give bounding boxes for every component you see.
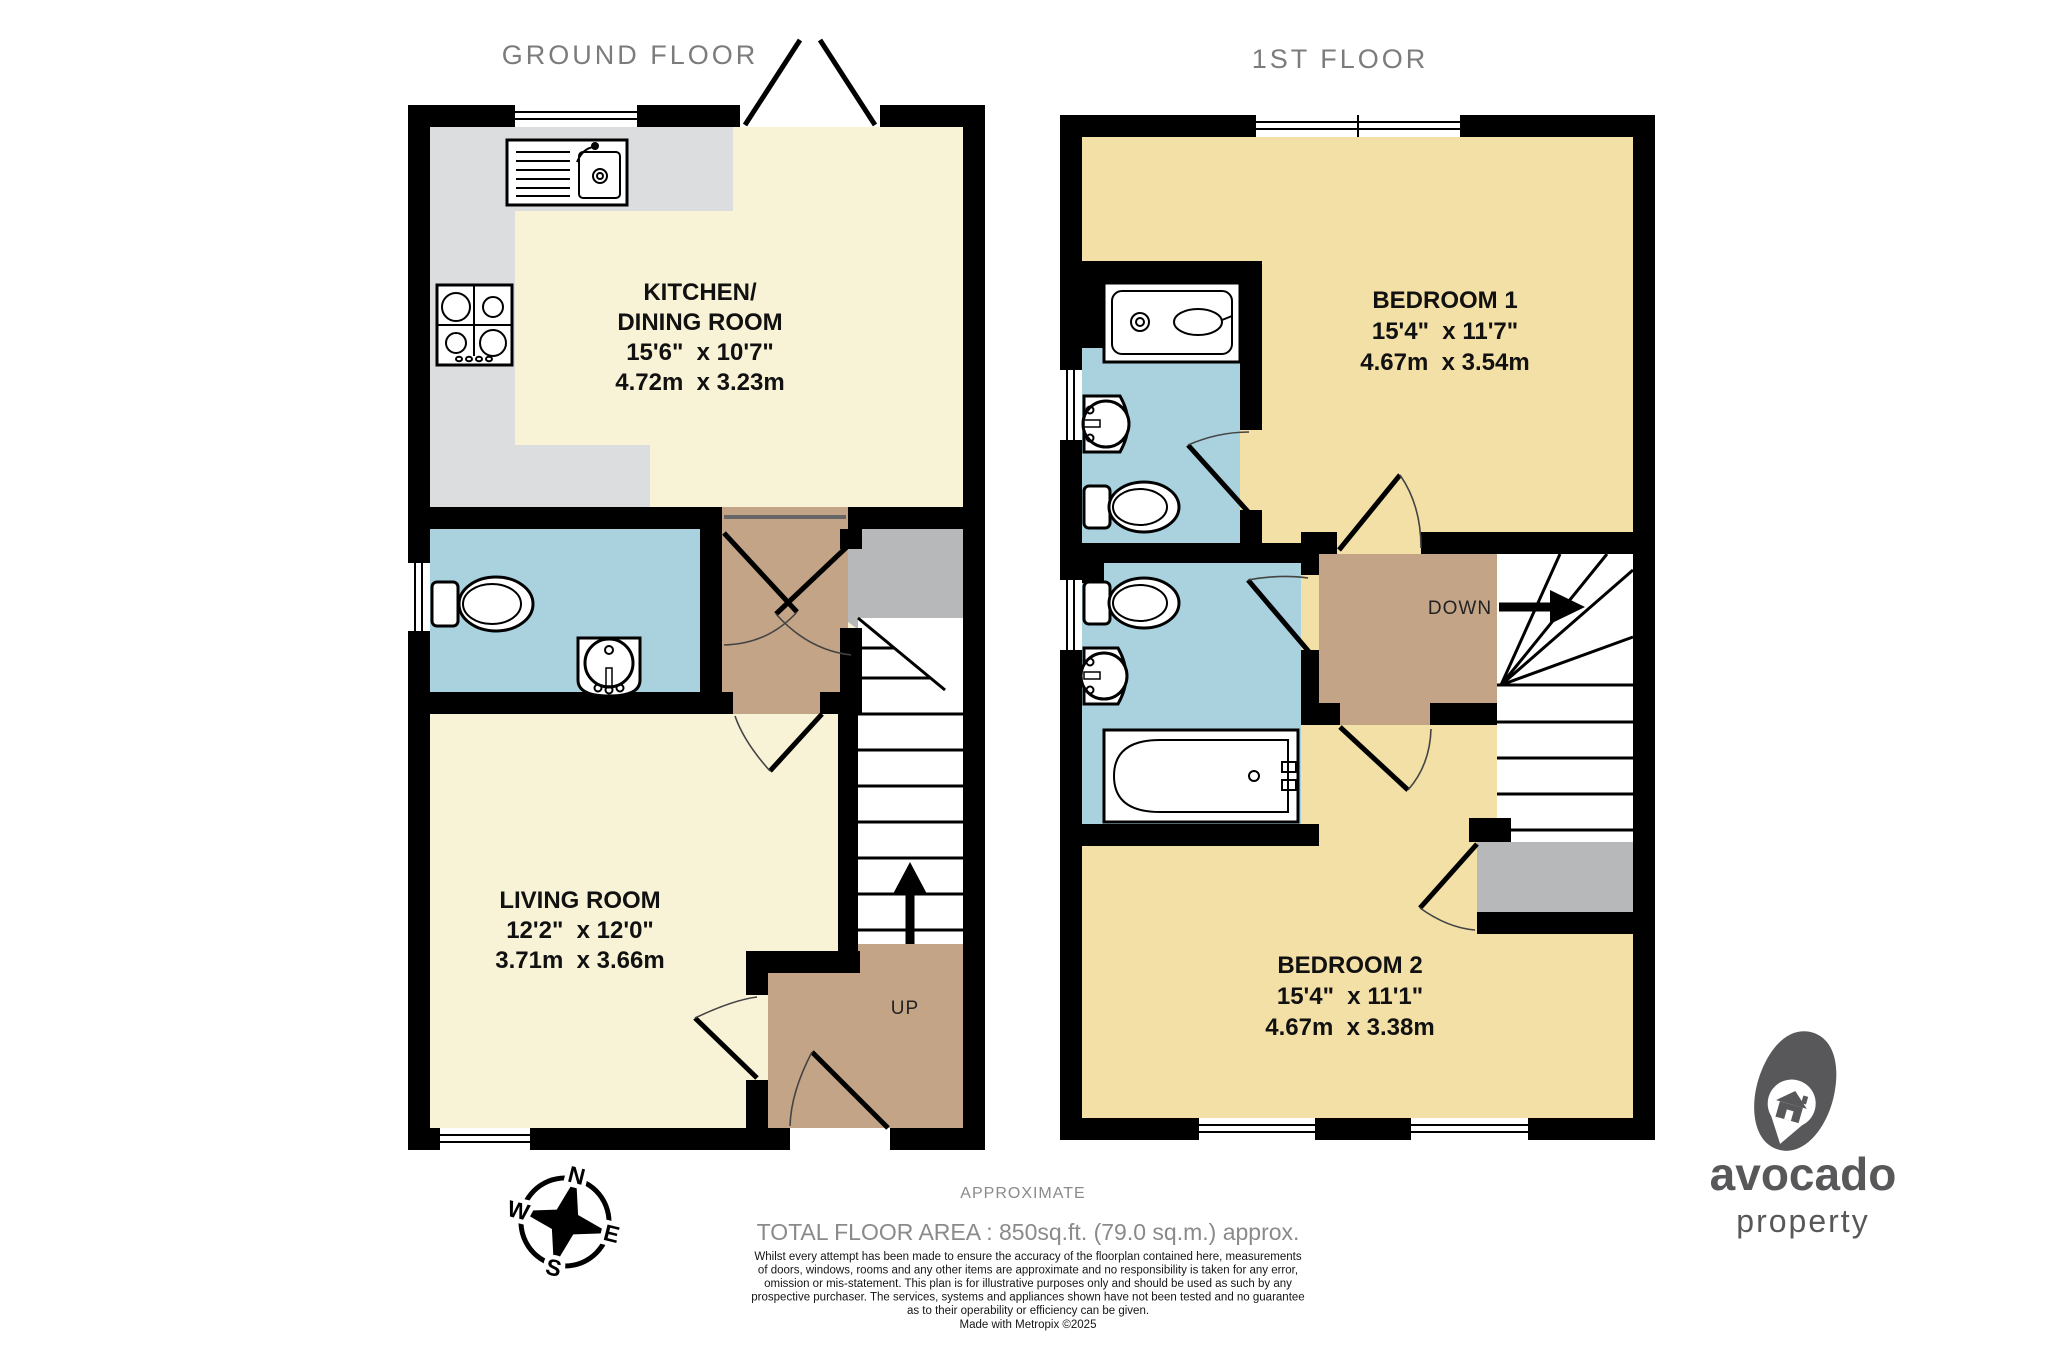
made-with-label: Made with Metropix ©2025: [960, 1319, 1097, 1331]
svg-text:DINING ROOM: DINING ROOM: [617, 309, 782, 336]
logo-wordmark: avocado: [1710, 1148, 1897, 1200]
first-cupboard: [1477, 842, 1633, 912]
svg-text:4.67m x 3.54m: 4.67m x 3.54m: [1360, 349, 1529, 376]
living-stairs-wall: [838, 714, 858, 957]
kitchen-label: KITCHEN/: [643, 279, 757, 306]
compass-e: E: [601, 1219, 622, 1248]
living-window: [440, 1128, 530, 1150]
wc-right-wall: [700, 529, 722, 692]
disclaimer-line: of doors, windows, rooms and any other i…: [758, 1265, 1298, 1277]
living-label: LIVING ROOM: [499, 887, 660, 914]
ensuite-right-wall: [1240, 261, 1262, 430]
first-stair-well: [1497, 554, 1633, 842]
up-label: UP: [891, 998, 919, 1019]
down-label: DOWN: [1428, 598, 1492, 619]
kitchen-window: [515, 105, 637, 127]
bathroom-window: [1060, 580, 1082, 650]
brand-logo: avocado property: [1710, 1022, 1897, 1239]
ground-floor-title: GROUND FLOOR: [502, 40, 759, 70]
landing-bottom-wall-right: [1430, 703, 1497, 725]
landing: [1319, 554, 1497, 725]
ensuite-sink: [1083, 396, 1129, 452]
bathroom-toilet: [1084, 578, 1179, 628]
hall-stairs-stub-bottom: [840, 628, 862, 714]
disclaimer-line: Whilst every attempt has been made to en…: [754, 1251, 1301, 1263]
cupboard-wall-stub: [1469, 818, 1511, 842]
compass-n: N: [565, 1161, 587, 1190]
living-hall-wall-v1: [746, 951, 768, 995]
wc-window: [408, 563, 430, 631]
svg-text:4.67m x 3.38m: 4.67m x 3.38m: [1265, 1014, 1434, 1041]
bathroom-corner-block: [1082, 563, 1104, 583]
bath: [1104, 730, 1298, 822]
wc-toilet: [432, 577, 533, 631]
footer-block: APPROXIMATE TOTAL FLOOR AREA : 850sq.ft.…: [751, 1185, 1304, 1331]
compass-w: W: [505, 1195, 533, 1226]
svg-text:15'4" x 11'1": 15'4" x 11'1": [1277, 983, 1423, 1010]
kitchen-cupboard-wall: [848, 507, 963, 529]
svg-text:15'6" x 10'7": 15'6" x 10'7": [626, 339, 774, 366]
sink-tap: [591, 142, 599, 150]
wc-sink: [578, 638, 640, 696]
ensuite-bathroom-wall: [1082, 543, 1319, 563]
kitchen-counter-left-block: [430, 445, 650, 507]
ground-staircase: [858, 618, 963, 968]
floorplan-svg: GROUND FLOOR: [0, 0, 2048, 1365]
avocado-icon: [1741, 1022, 1849, 1161]
approximate-label: APPROXIMATE: [960, 1185, 1085, 1202]
kitchen-sink: [507, 140, 627, 205]
disclaimer-line: as to their operability or efficiency ca…: [907, 1305, 1149, 1317]
bathroom-sink: [1081, 648, 1127, 704]
bedroom1-label: BEDROOM 1: [1372, 287, 1517, 314]
bed1-ensuite-wall: [1082, 261, 1262, 283]
svg-text:3.71m x 3.66m: 3.71m x 3.66m: [495, 947, 664, 974]
disclaimer-line: prospective purchaser. The services, sys…: [751, 1292, 1304, 1304]
floorplan-page: GROUND FLOOR: [0, 0, 2048, 1365]
bedroom1-window: [1256, 115, 1460, 137]
svg-text:4.72m x 3.23m: 4.72m x 3.23m: [615, 369, 784, 396]
kitchen-hob: [437, 285, 512, 365]
compass-s: S: [543, 1253, 564, 1282]
bedroom2-label: BEDROOM 2: [1277, 952, 1422, 979]
first-staircase: [1497, 554, 1633, 842]
svg-text:15'4" x 11'7": 15'4" x 11'7": [1372, 318, 1518, 345]
ensuite-toilet: [1084, 482, 1179, 532]
wc-living-wall: [430, 692, 733, 714]
bedroom2-window-left: [1199, 1118, 1315, 1140]
entrance-hall-upper: [858, 944, 963, 973]
ground-floor-plan: GROUND FLOOR: [408, 40, 985, 1150]
shower: [1104, 283, 1240, 362]
first-floor-plan: 1ST FLOOR DOWN: [1060, 44, 1655, 1140]
landing-top-wall-right: [1421, 532, 1633, 554]
disclaimer-line: omission or mis-statement. This plan is …: [764, 1278, 1292, 1290]
landing-top-wall-left: [1301, 532, 1337, 554]
logo-subtext: property: [1736, 1203, 1869, 1239]
kitchen-wc-wall: [430, 507, 722, 529]
cupboard-bottom-wall: [1477, 912, 1633, 934]
bedroom2-window-right: [1411, 1118, 1528, 1140]
bathroom-right-wall-bottom: [1301, 650, 1319, 725]
inner-hallway: [722, 507, 848, 714]
compass-rose: N E S W: [493, 1149, 633, 1294]
bathroom-right-wall-top: [1301, 563, 1319, 575]
svg-text:12'2" x 12'0": 12'2" x 12'0": [506, 917, 654, 944]
landing-bottom-wall-left: [1319, 703, 1340, 725]
ensuite-window: [1060, 370, 1082, 440]
living-hall-wall-v2: [746, 1080, 768, 1128]
ensuite-duct-block: [1082, 283, 1104, 348]
total-floor-area: TOTAL FLOOR AREA : 850sq.ft. (79.0 sq.m.…: [757, 1219, 1300, 1245]
first-floor-title: 1ST FLOOR: [1252, 44, 1429, 74]
bathroom-bottom-wall: [1082, 824, 1319, 846]
patio-doors: [740, 40, 880, 127]
